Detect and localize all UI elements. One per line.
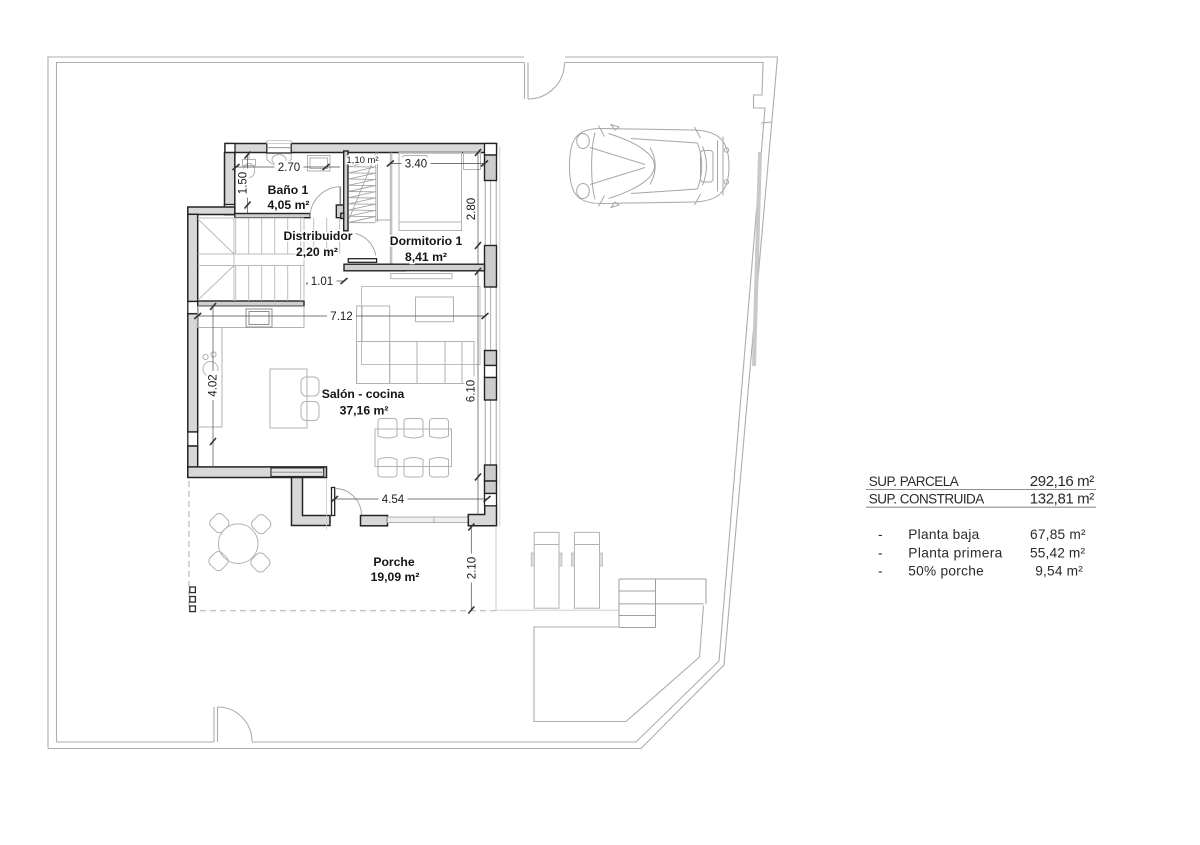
svg-text:1.50: 1.50	[238, 172, 250, 194]
svg-text:2.80: 2.80	[466, 198, 478, 220]
svg-text:4.54: 4.54	[382, 494, 405, 506]
svg-text:SUP. PARCELA: SUP. PARCELA	[869, 474, 959, 489]
svg-text:-: -	[878, 527, 883, 542]
svg-text:2,20 m²: 2,20 m²	[296, 245, 338, 259]
svg-text:2.10: 2.10	[467, 557, 479, 579]
svg-text:19,09 m²: 19,09 m²	[371, 570, 420, 584]
svg-text:Baño 1: Baño 1	[268, 183, 309, 197]
svg-text:6.10: 6.10	[466, 380, 478, 402]
svg-text:55,42 m²: 55,42 m²	[1030, 546, 1085, 561]
svg-text:2.70: 2.70	[278, 162, 300, 174]
svg-text:Porche: Porche	[373, 555, 415, 569]
svg-text:Planta baja: Planta baja	[908, 527, 979, 542]
svg-text:Planta primera: Planta primera	[908, 546, 1002, 561]
svg-text:37,16 m²: 37,16 m²	[340, 404, 389, 418]
svg-text:Salón - cocina: Salón - cocina	[322, 387, 405, 401]
svg-text:4,05 m²: 4,05 m²	[267, 198, 309, 212]
svg-text:3.40: 3.40	[405, 159, 427, 171]
svg-text:4.02: 4.02	[208, 374, 220, 396]
svg-text:292,16 m²: 292,16 m²	[1030, 473, 1095, 490]
svg-text:1.01: 1.01	[311, 276, 333, 288]
svg-text:67,85 m²: 67,85 m²	[1030, 527, 1086, 542]
svg-text:132,81 m²: 132,81 m²	[1030, 491, 1095, 508]
svg-text:SUP. CONSTRUIDA: SUP. CONSTRUIDA	[869, 492, 985, 507]
svg-text:8,41 m²: 8,41 m²	[405, 250, 447, 264]
svg-text:9,54 m²: 9,54 m²	[1035, 563, 1083, 578]
svg-text:Distribuidor: Distribuidor	[283, 229, 352, 243]
svg-text:1,10 m²: 1,10 m²	[346, 155, 378, 166]
svg-text:50% porche: 50% porche	[908, 563, 983, 578]
svg-text:Dormitorio 1: Dormitorio 1	[390, 234, 463, 248]
svg-text:-: -	[878, 546, 883, 561]
svg-text:-: -	[878, 563, 883, 578]
svg-text:7.12: 7.12	[330, 311, 352, 323]
